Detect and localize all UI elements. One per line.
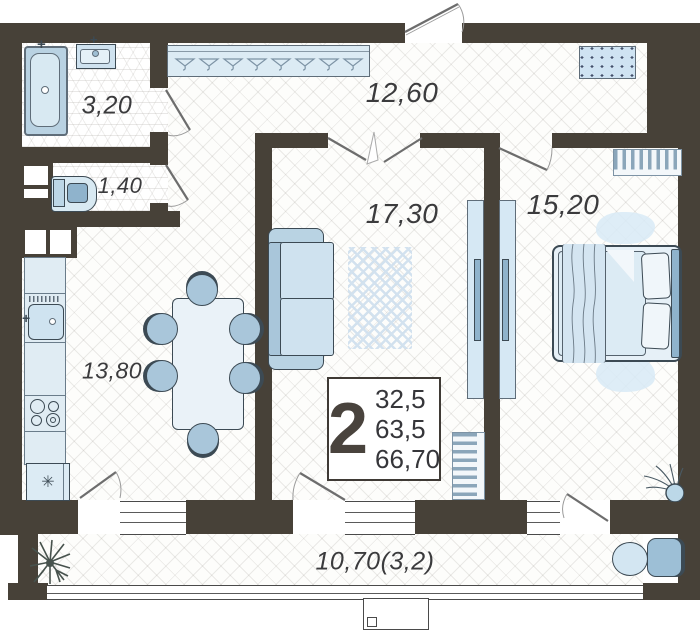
toilet-tank [53, 179, 65, 207]
counter-divider [25, 342, 65, 343]
wall-top-left [0, 23, 168, 43]
bathtub: + [24, 46, 68, 136]
snowflake-icon: ✳ [41, 472, 54, 492]
bathroom-door [148, 80, 204, 138]
hanger-icon [246, 56, 268, 72]
wc-door [148, 158, 204, 210]
wall-bottom-d [610, 500, 700, 534]
window-living [345, 501, 415, 535]
hanger-icon [270, 56, 292, 72]
pillow [641, 302, 671, 349]
entrance-door [398, 0, 470, 46]
total-area-value: 66,70 [375, 444, 440, 474]
bed [552, 245, 682, 362]
fridge: ✳ [26, 463, 70, 501]
vent-shaft-niche [24, 166, 48, 185]
pillow [641, 252, 671, 299]
balcony-table [612, 542, 648, 576]
tv-panel-living [467, 200, 484, 399]
sink-tap [49, 318, 56, 325]
label-balcony-area: 10,70(3,2) [316, 548, 435, 577]
bedroom-door [493, 128, 557, 184]
stove-burner-ring [50, 417, 56, 423]
blanket [562, 244, 606, 363]
label-bedroom-area: 15,20 [527, 189, 600, 221]
bathroom-sink: + [76, 44, 116, 69]
living-area-value: 32,5 [375, 384, 440, 414]
wall-balcony-pillar-right [643, 583, 700, 600]
blanket-folds [563, 244, 605, 363]
vent-shaft-niche [24, 189, 48, 198]
wall-bottom-b [186, 500, 293, 534]
wall-wc-bottom [22, 211, 180, 227]
counter-divider [25, 293, 65, 294]
dining-chair [187, 423, 219, 455]
tv-icon [474, 259, 481, 341]
dresser [579, 46, 636, 79]
kitchen-balcony-door [74, 460, 126, 505]
toilet-bowl [67, 183, 88, 203]
label-wc-area: 1,40 [98, 173, 143, 199]
faucet-icon: + [90, 32, 98, 47]
kitchen-sink [28, 304, 64, 340]
hanger-icon [294, 56, 316, 72]
label-kitchen-area: 13,80 [82, 358, 142, 385]
wall-bottom-c [415, 500, 527, 534]
wall-left [0, 23, 22, 535]
sink-tap [92, 50, 99, 57]
hanger-icon [174, 56, 196, 72]
radiator-bedroom [613, 149, 682, 176]
plant-bedroom [638, 462, 684, 502]
label-hallway-area: 12,60 [366, 77, 439, 109]
wall-bottom-a [0, 500, 78, 534]
stove-burner [48, 401, 59, 412]
bedroom-rug [596, 212, 655, 244]
balcony-glazing [47, 585, 643, 600]
dining-chair [229, 362, 261, 394]
counter-divider [25, 395, 65, 396]
bedroom-balcony-door [556, 466, 614, 524]
plant-balcony [26, 536, 74, 586]
ac-unit-basket [363, 598, 429, 630]
faucet-icon: + [37, 36, 46, 53]
tv-panel-bedroom [499, 200, 516, 399]
fridge-door-line [63, 464, 64, 500]
wall-top-mid [168, 23, 405, 43]
room-count: 2 [328, 397, 368, 462]
ac-unit-detail [367, 617, 377, 627]
headboard [671, 249, 680, 358]
drainboard [29, 296, 61, 302]
dining-chair [146, 313, 178, 345]
stove-burner [46, 413, 60, 427]
vent-shaft-niche [25, 230, 46, 254]
wardrobe-hangers [167, 45, 370, 77]
wall-living-bedroom-partition [484, 133, 500, 505]
apartment-info-box: 2 32,5 63,5 66,70 [327, 377, 441, 481]
vent-shaft-niche [50, 230, 71, 254]
wall-bath-wc-divider [22, 147, 152, 163]
sofa [268, 228, 334, 368]
usable-area-value: 63,5 [375, 414, 440, 444]
hanger-icon [198, 56, 220, 72]
bathtub-drain [41, 86, 49, 94]
label-living-area: 17,30 [366, 198, 439, 230]
label-bathroom-area: 3,20 [82, 92, 133, 121]
dining-chair [229, 313, 261, 345]
hanger-icon [342, 56, 364, 72]
sofa-cushion [280, 242, 334, 300]
wall-pilaster-topright [647, 23, 700, 148]
dining-chair [186, 274, 218, 306]
radiator-living [452, 432, 485, 500]
tv-icon [502, 259, 509, 341]
stove-burner [31, 415, 42, 426]
stove-burner [30, 399, 45, 414]
living-rug [348, 247, 412, 349]
hanger-icon [318, 56, 340, 72]
faucet-icon: + [22, 310, 30, 326]
dining-chair [146, 360, 178, 392]
wall-bedroom-top [552, 133, 647, 148]
floor-plan: + + + [0, 0, 700, 635]
hanger-icon [222, 56, 244, 72]
sofa-cushion [280, 298, 334, 356]
window-kitchen [120, 501, 186, 535]
counter-divider [25, 431, 65, 432]
balcony-chair [647, 538, 682, 577]
toilet [51, 176, 97, 212]
wardrobe-shelf-line [168, 51, 369, 52]
kitchen-counter: + [24, 257, 66, 465]
living-room-opening [325, 128, 425, 170]
